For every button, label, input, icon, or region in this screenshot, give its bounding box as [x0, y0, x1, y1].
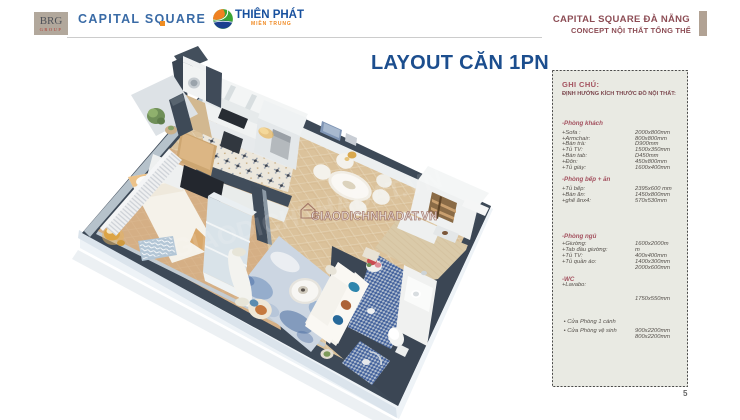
svg-text:GIAODICHNHADAT.VN: GIAODICHNHADAT.VN — [311, 211, 438, 223]
